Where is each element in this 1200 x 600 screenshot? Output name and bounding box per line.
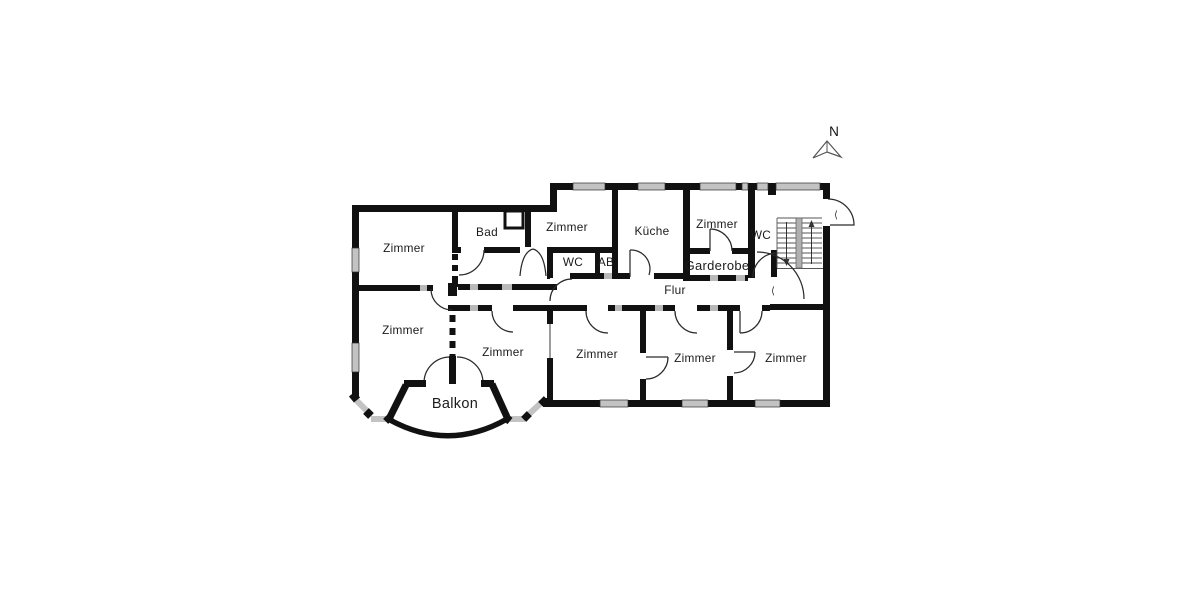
- door-arc-zimmer-bottom-mid: [586, 311, 608, 333]
- balcony-front-arc: [390, 419, 507, 436]
- floor-plan-svg: ⟨ ⟨ N Zimmer Bad Zimmer Küche Zimmer: [0, 0, 1200, 600]
- room-label-zimmer-bottom-inner: Zimmer: [674, 351, 716, 365]
- window-icon: [755, 400, 780, 407]
- exterior-walls: [352, 183, 830, 407]
- room-label-wc-top-right: WC: [751, 228, 771, 242]
- door-arc-balcony-left: [424, 357, 450, 383]
- window-icon: [600, 400, 628, 407]
- window-icon: [776, 183, 820, 190]
- window-icon: [638, 183, 665, 190]
- room-label-zimmer-top-right: Zimmer: [696, 217, 738, 231]
- window-icon: [573, 183, 605, 190]
- compass-n-label: N: [829, 124, 839, 139]
- door-arc-wc-inner: [550, 279, 572, 301]
- room-label-flur: Flur: [664, 283, 686, 297]
- door-arc-kueche: [630, 250, 650, 277]
- door-arc-zimmer-bottom-right: [740, 311, 762, 333]
- window-icon: [352, 343, 359, 372]
- door-swing-glyph: ⟨: [771, 286, 775, 297]
- shaft-box: [505, 211, 523, 228]
- room-label-ab: AB: [598, 255, 614, 269]
- door-arc-zimmer-top-mid: [520, 249, 546, 276]
- room-label-zimmer-top-left: Zimmer: [383, 241, 425, 255]
- stair-stringer: [796, 218, 802, 268]
- compass: N: [813, 124, 841, 158]
- door-arc-bad: [459, 250, 484, 275]
- window-icon: [352, 248, 359, 272]
- room-label-zimmer-bottom-right: Zimmer: [765, 351, 807, 365]
- door-arc-between-z3-z4: [646, 357, 668, 379]
- door-arc-zimmer-top-right: [710, 229, 732, 251]
- room-label-zimmer-top-mid: Zimmer: [546, 220, 588, 234]
- room-label-zimmer-bottom-left: Zimmer: [482, 345, 524, 359]
- room-labels: Zimmer Bad Zimmer Küche Zimmer WC WC AB …: [382, 217, 807, 412]
- door-arc-balcony-right: [457, 357, 483, 383]
- window-icon: [757, 183, 768, 190]
- window-icon: [682, 400, 708, 407]
- door-arc-between-z4-z5: [734, 352, 755, 373]
- floorplan-page: ⟨ ⟨ N Zimmer Bad Zimmer Küche Zimmer: [0, 0, 1200, 600]
- room-label-zimmer-mid-left: Zimmer: [382, 323, 424, 337]
- door-arc-entrance: [828, 199, 854, 225]
- room-label-wc-inner: WC: [563, 255, 583, 269]
- room-label-kueche: Küche: [635, 224, 670, 238]
- door-arc-zimmer-bottom-left: [492, 311, 513, 332]
- window-icon: [700, 183, 736, 190]
- room-label-garderobe: Garderobe: [685, 258, 750, 273]
- window-icon: [742, 183, 748, 190]
- room-label-zimmer-bottom-mid: Zimmer: [576, 347, 618, 361]
- room-label-balkon: Balkon: [432, 396, 478, 412]
- room-label-bad: Bad: [476, 225, 498, 239]
- door-arc-zimmer-bottom-inner: [675, 311, 697, 333]
- stair-arrow-up-head: [809, 220, 815, 227]
- door-swing-glyph: ⟨: [834, 210, 838, 221]
